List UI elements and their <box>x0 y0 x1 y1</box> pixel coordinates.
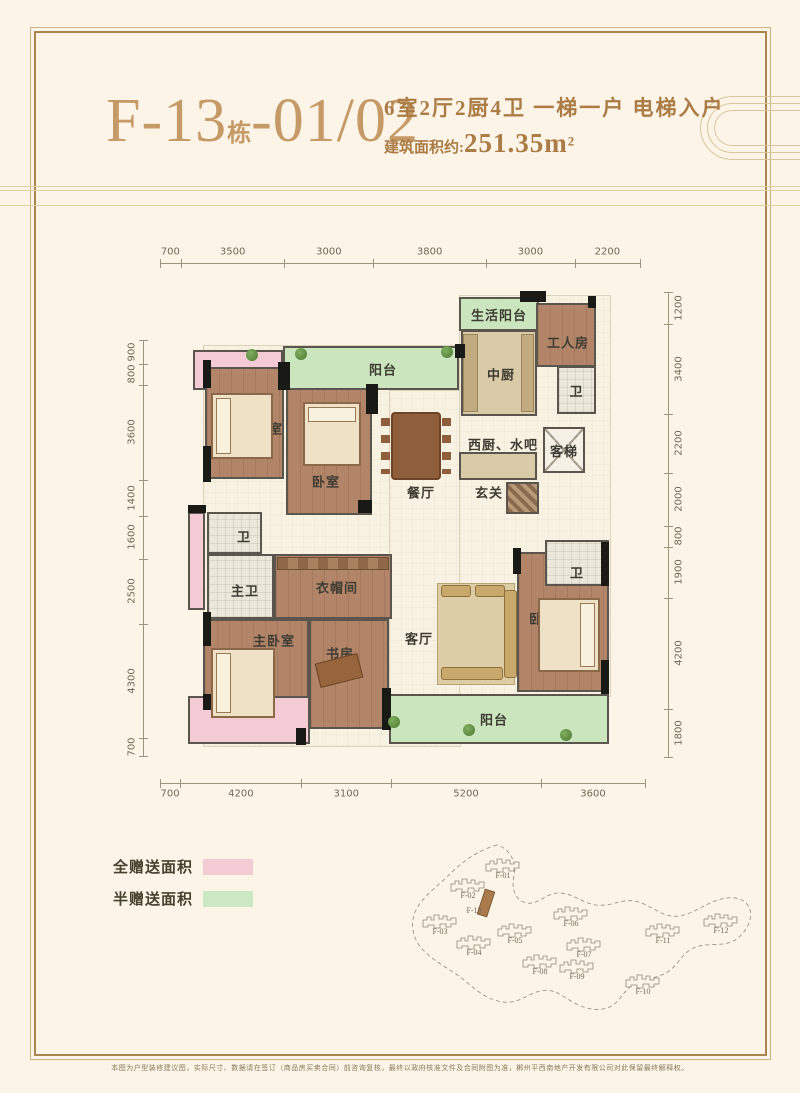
elevator-label: 客梯 <box>550 441 578 460</box>
dimension-label: 700 <box>161 247 180 258</box>
building-label-F-04: F-04 <box>466 948 481 957</box>
room-label: 西厨、水吧 <box>468 435 538 454</box>
dimension-label: 4200 <box>228 789 253 800</box>
floor-plan: 阳台生活阳台工人房中厨卫客梯卧室卧室卫主卫衣帽间主卧室书房卧室卫阳台西厨、水吧玄… <box>0 0 800 800</box>
dimension-label: 1600 <box>127 525 138 550</box>
dimension-label: 3800 <box>417 247 442 258</box>
wall-segment <box>588 296 596 308</box>
room-label: 客厅 <box>405 629 433 648</box>
dimension-line <box>301 779 302 788</box>
legend-item-full-gift: 全赠送面积 <box>113 856 253 877</box>
dimension-line <box>139 480 148 481</box>
dimension-line <box>160 259 161 268</box>
dimension-line <box>664 547 673 548</box>
furniture-strip <box>277 557 389 570</box>
dimension-label: 800 <box>127 365 138 384</box>
building-label-F-08: F-08 <box>532 967 547 976</box>
building-label-F-09: F-09 <box>569 972 584 981</box>
room-bath-3: 卫 <box>545 540 609 586</box>
legend-label: 半赠送面积 <box>113 888 193 909</box>
wall-segment <box>455 344 465 358</box>
dimension-label: 2000 <box>674 487 685 512</box>
room-label: 玄关 <box>475 483 503 502</box>
furniture-sofa <box>504 590 517 678</box>
dimension-line <box>181 259 182 268</box>
building-label-F-03: F-03 <box>432 927 447 936</box>
kitchen-cn-label: 中厨 <box>487 365 515 384</box>
building-label-F-01: F-01 <box>495 871 510 880</box>
dimension-label: 1400 <box>127 485 138 510</box>
balcony-top-label: 阳台 <box>369 360 397 379</box>
furniture-bed <box>211 393 273 459</box>
dimension-line <box>664 324 673 325</box>
bedroom-2-label: 卧室 <box>312 472 340 491</box>
dimension-line <box>664 709 673 710</box>
furniture-bed <box>303 402 361 466</box>
balcony-bottom-label: 阳台 <box>480 710 508 729</box>
dimension-line <box>486 259 487 268</box>
plant-icon <box>560 729 572 741</box>
dimension-label: 1900 <box>674 560 685 585</box>
dimension-label: 2200 <box>595 247 620 258</box>
dimension-label: 700 <box>127 737 138 756</box>
floorplan-poster: F-13栋-01/02 6室2厅2厨4卫 一梯一户 电梯入户 建筑面积约:251… <box>0 0 800 1093</box>
dimension-line <box>664 473 673 474</box>
dimension-label: 3000 <box>316 247 341 258</box>
dimension-line <box>664 292 673 293</box>
wall-segment <box>203 446 211 482</box>
building-label-F-02: F-02 <box>460 891 475 900</box>
dimension-label: 700 <box>161 789 180 800</box>
wall-segment <box>278 362 290 390</box>
dimension-label: 3000 <box>518 247 543 258</box>
dimension-label: 5200 <box>453 789 478 800</box>
wall-segment <box>513 548 521 574</box>
furniture-sofa <box>441 667 503 680</box>
dimension-line <box>664 598 673 599</box>
furniture-chairs <box>442 418 451 474</box>
plant-icon <box>388 716 400 728</box>
dimension-label: 3500 <box>220 247 245 258</box>
dimension-label: 800 <box>674 527 685 546</box>
dimension-line <box>139 340 148 341</box>
master-bath-label: 主卫 <box>231 581 259 600</box>
plant-icon <box>295 348 307 360</box>
dimension-line <box>284 259 285 268</box>
dimension-line <box>640 259 641 268</box>
wall-segment <box>358 500 372 513</box>
dimension-label: 1200 <box>674 295 685 320</box>
legend-label: 全赠送面积 <box>113 856 193 877</box>
dimension-line <box>139 624 148 625</box>
furniture-cstrip <box>521 334 534 412</box>
dimension-line <box>664 526 673 527</box>
room-balcony-bottom: 阳台 <box>389 694 609 744</box>
dimension-label: 4300 <box>127 668 138 693</box>
dimension-label: 2200 <box>674 431 685 456</box>
furniture-chairs <box>381 418 390 474</box>
dimension-line <box>139 756 148 757</box>
bath-top-label: 卫 <box>569 381 583 400</box>
room-gift-strip-left <box>188 512 205 610</box>
wall-segment <box>188 505 206 513</box>
master-bedroom-label: 主卧室 <box>253 631 295 650</box>
dimension-line <box>391 779 392 788</box>
legend: 全赠送面积 半赠送面积 <box>113 856 253 920</box>
dimension-label: 900 <box>127 342 138 361</box>
building-label-F-05: F-05 <box>507 936 522 945</box>
dimension-line <box>139 516 148 517</box>
disclaimer-text: 本图为户型装修建议图，实际尺寸、数据请在签订（商品房买卖合同）前咨询复核，最终以… <box>0 1064 800 1074</box>
furniture-sofa <box>475 585 505 597</box>
dimension-line <box>180 779 181 788</box>
room-foyer-rug <box>506 482 539 514</box>
wall-segment <box>601 660 609 694</box>
life-balcony-label: 生活阳台 <box>471 305 527 324</box>
dimension-label: 2500 <box>127 579 138 604</box>
site-boundary <box>413 845 751 1009</box>
room-life-balcony: 生活阳台 <box>459 297 539 331</box>
wall-segment <box>601 542 609 586</box>
bath-2-label: 卫 <box>237 527 251 546</box>
green-swatch <box>203 891 253 907</box>
building-label-F-11: F-11 <box>656 936 671 945</box>
room-worker-room: 工人房 <box>536 303 596 367</box>
pink-swatch <box>203 859 253 875</box>
dimension-line <box>541 779 542 788</box>
bath-3-label: 卫 <box>570 563 584 582</box>
dimension-label: 1800 <box>674 720 685 745</box>
plant-icon <box>246 349 258 361</box>
dimension-line <box>645 779 646 788</box>
dimension-line <box>139 385 148 386</box>
dimension-line <box>373 259 374 268</box>
furniture-table <box>391 412 441 480</box>
wall-segment <box>520 291 546 302</box>
dimension-label: 3600 <box>580 789 605 800</box>
building-label-F-10: F-10 <box>635 987 650 996</box>
dimension-line <box>160 263 640 264</box>
closet-label: 衣帽间 <box>316 578 358 597</box>
room-label: 餐厅 <box>407 483 435 502</box>
plant-icon <box>463 724 475 736</box>
building-label-F-13: F-13 <box>466 906 481 915</box>
furniture-cstrip <box>463 334 478 412</box>
dimension-line <box>139 364 148 365</box>
room-elevator: 客梯 <box>543 427 585 473</box>
wall-segment <box>296 728 306 745</box>
legend-item-half-gift: 半赠送面积 <box>113 888 253 909</box>
dimension-line <box>664 757 673 758</box>
building-label-F-06: F-06 <box>563 919 578 928</box>
room-bath-2: 卫 <box>207 512 262 554</box>
room-bath-top: 卫 <box>557 366 596 414</box>
wall-segment <box>203 694 211 710</box>
furniture-bed <box>211 648 275 718</box>
dimension-line <box>668 292 669 757</box>
dimension-line <box>139 559 148 560</box>
dimension-line <box>160 783 645 784</box>
room-west-kitchen-bar <box>459 452 537 480</box>
dimension-label: 3600 <box>127 419 138 444</box>
dimension-label: 4200 <box>674 641 685 666</box>
dimension-line <box>160 779 161 788</box>
dimension-line <box>664 414 673 415</box>
plant-icon <box>441 346 453 358</box>
building-label-F-07: F-07 <box>576 950 591 959</box>
furniture-bed <box>538 598 600 672</box>
wall-segment <box>366 384 378 414</box>
furniture-sofa <box>441 585 471 597</box>
dimension-line <box>575 259 576 268</box>
site-map: F-01F-02F-13F-03F-04F-05F-06F-07F-08F-09… <box>393 833 765 1025</box>
dimension-line <box>143 340 144 756</box>
building-label-F-12: F-12 <box>713 926 728 935</box>
worker-room-label: 工人房 <box>547 333 589 352</box>
wall-segment <box>203 360 211 388</box>
dimension-label: 3400 <box>674 356 685 381</box>
dimension-line <box>139 738 148 739</box>
wall-segment <box>203 612 211 646</box>
room-master-bath: 主卫 <box>207 554 274 619</box>
dimension-label: 3100 <box>333 789 358 800</box>
